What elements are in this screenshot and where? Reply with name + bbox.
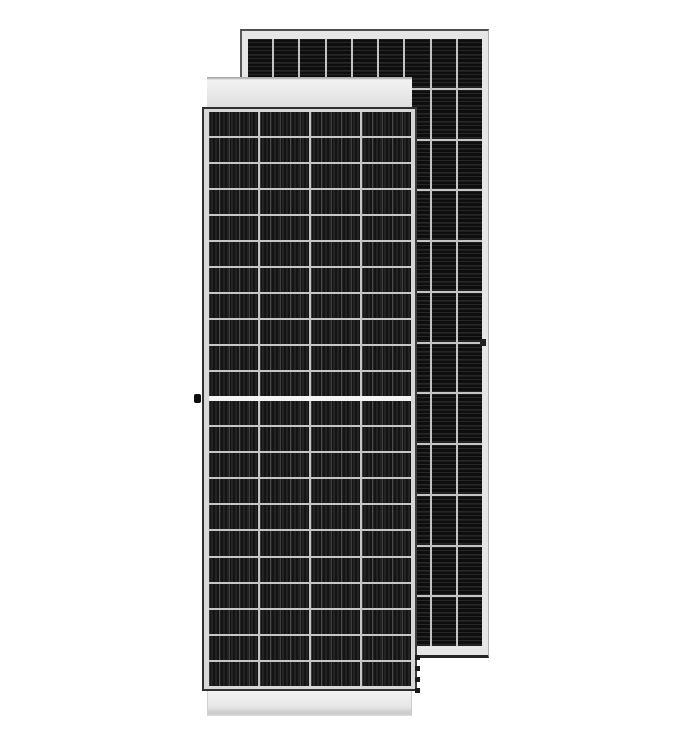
solar-half-cell: [311, 320, 360, 344]
solar-half-cell: [209, 453, 258, 477]
product-image-canvas: [0, 0, 684, 748]
panel-top-frame: [207, 77, 412, 108]
solar-cell-back: [458, 547, 482, 596]
solar-half-cell: [311, 112, 360, 136]
solar-half-cell: [311, 216, 360, 240]
solar-half-cell: [362, 346, 411, 370]
solar-half-cell: [260, 216, 309, 240]
solar-half-cell: [260, 190, 309, 214]
solar-half-cell: [260, 427, 309, 451]
solar-cell-back: [432, 141, 456, 190]
solar-half-cell: [260, 531, 309, 555]
solar-half-cell: [362, 636, 411, 660]
solar-half-cell: [260, 112, 309, 136]
solar-half-cell: [362, 190, 411, 214]
solar-cell-back: [458, 445, 482, 494]
solar-half-cell: [362, 268, 411, 292]
grounding-lug: [194, 394, 201, 403]
solar-cell-back: [458, 90, 482, 139]
solar-half-cell: [362, 584, 411, 608]
solar-cell-back: [458, 344, 482, 393]
solar-half-cell: [311, 138, 360, 162]
solar-cell-back: [458, 496, 482, 545]
solar-half-cell: [209, 505, 258, 529]
front-cell-grid-lower: [209, 401, 411, 686]
solar-cell-back: [432, 90, 456, 139]
solar-half-cell: [311, 453, 360, 477]
solar-cell-back: [432, 445, 456, 494]
solar-half-cell: [311, 479, 360, 503]
solar-half-cell: [362, 242, 411, 266]
solar-cell-back: [458, 293, 482, 342]
solar-half-cell: [209, 164, 258, 188]
solar-half-cell: [260, 636, 309, 660]
solar-half-cell: [311, 268, 360, 292]
solar-half-cell: [209, 294, 258, 318]
solar-half-cell: [260, 268, 309, 292]
solar-cell-back: [432, 293, 456, 342]
solar-half-cell: [311, 242, 360, 266]
solar-half-cell: [362, 112, 411, 136]
solar-half-cell: [260, 138, 309, 162]
solar-half-cell: [311, 427, 360, 451]
solar-half-cell: [362, 427, 411, 451]
panel-glass: [202, 107, 417, 691]
solar-cell-back: [432, 597, 456, 646]
frame-mounting-notch: [480, 339, 486, 346]
solar-half-cell: [209, 401, 258, 425]
solar-cell-back: [432, 394, 456, 443]
solar-half-cell: [311, 294, 360, 318]
solar-half-cell: [362, 294, 411, 318]
solar-cell-back: [458, 597, 482, 646]
solar-half-cell: [362, 164, 411, 188]
solar-half-cell: [209, 242, 258, 266]
solar-half-cell: [311, 190, 360, 214]
solar-cell-back: [458, 394, 482, 443]
solar-half-cell: [209, 662, 258, 686]
solar-half-cell: [311, 372, 360, 396]
solar-half-cell: [209, 584, 258, 608]
solar-half-cell: [260, 662, 309, 686]
solar-half-cell: [209, 427, 258, 451]
solar-half-cell: [311, 164, 360, 188]
solar-half-cell: [362, 531, 411, 555]
solar-half-cell: [209, 216, 258, 240]
solar-half-cell: [209, 610, 258, 634]
panel-edge-dashes: [415, 655, 420, 696]
solar-half-cell: [260, 320, 309, 344]
solar-half-cell: [209, 268, 258, 292]
solar-half-cell: [260, 584, 309, 608]
solar-half-cell: [209, 636, 258, 660]
solar-half-cell: [260, 558, 309, 582]
solar-half-cell: [362, 662, 411, 686]
solar-half-cell: [362, 610, 411, 634]
solar-half-cell: [260, 242, 309, 266]
solar-half-cell: [209, 531, 258, 555]
solar-half-cell: [311, 401, 360, 425]
front-cell-grid-upper: [209, 112, 411, 396]
solar-half-cell: [362, 372, 411, 396]
solar-half-cell: [209, 112, 258, 136]
solar-half-cell: [260, 294, 309, 318]
solar-half-cell: [311, 584, 360, 608]
solar-half-cell: [260, 372, 309, 396]
solar-half-cell: [311, 531, 360, 555]
solar-half-cell: [362, 558, 411, 582]
solar-half-cell: [362, 401, 411, 425]
solar-half-cell: [209, 479, 258, 503]
solar-half-cell: [209, 138, 258, 162]
solar-half-cell: [260, 453, 309, 477]
solar-cell-back: [432, 547, 456, 596]
solar-half-cell: [311, 558, 360, 582]
solar-half-cell: [260, 164, 309, 188]
solar-half-cell: [260, 505, 309, 529]
solar-half-cell: [311, 505, 360, 529]
solar-half-cell: [209, 372, 258, 396]
solar-cell-back: [432, 242, 456, 291]
solar-cell-back: [432, 39, 456, 88]
solar-half-cell: [311, 662, 360, 686]
solar-half-cell: [209, 320, 258, 344]
solar-half-cell: [362, 320, 411, 344]
solar-cell-back: [458, 39, 482, 88]
solar-half-cell: [311, 346, 360, 370]
solar-cell-back: [458, 191, 482, 240]
solar-cell-back: [432, 344, 456, 393]
solar-cell-back: [458, 141, 482, 190]
solar-half-cell: [362, 479, 411, 503]
solar-half-cell: [362, 138, 411, 162]
solar-cell-back: [458, 242, 482, 291]
solar-half-cell: [311, 610, 360, 634]
solar-half-cell: [260, 346, 309, 370]
solar-half-cell: [311, 636, 360, 660]
solar-half-cell: [260, 401, 309, 425]
solar-cell-back: [432, 191, 456, 240]
solar-half-cell: [209, 190, 258, 214]
solar-half-cell: [362, 505, 411, 529]
panel-bottom-frame: [207, 691, 412, 716]
solar-half-cell: [209, 558, 258, 582]
solar-cell-back: [432, 496, 456, 545]
solar-half-cell: [209, 346, 258, 370]
solar-half-cell: [260, 479, 309, 503]
solar-half-cell: [362, 453, 411, 477]
solar-half-cell: [362, 216, 411, 240]
solar-half-cell: [260, 610, 309, 634]
